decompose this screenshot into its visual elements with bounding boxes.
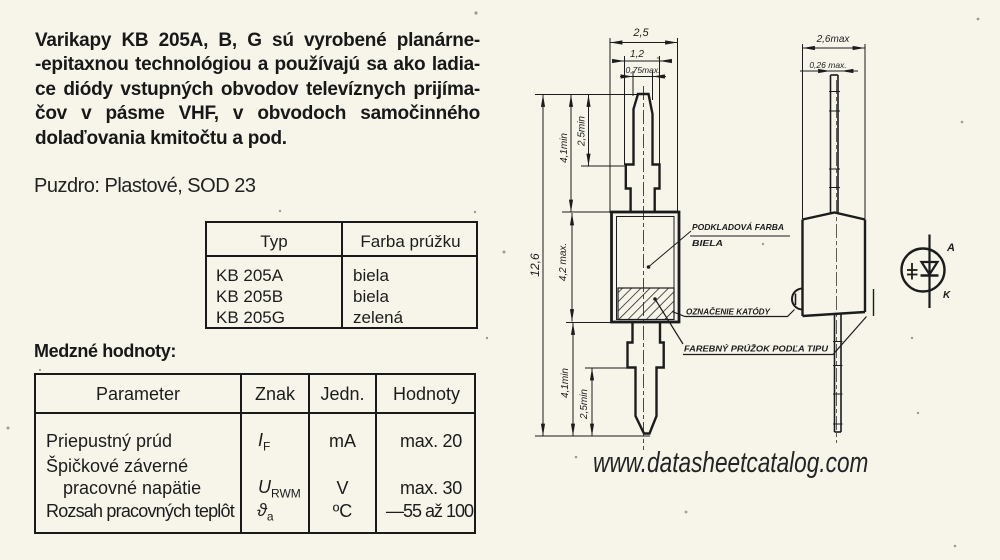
svg-text:4,1min: 4,1min bbox=[560, 368, 571, 398]
svg-text:0,75max.: 0,75max. bbox=[626, 65, 661, 75]
svg-text:2,5min: 2,5min bbox=[577, 116, 588, 147]
svg-text:BIELA: BIELA bbox=[692, 238, 723, 248]
svg-text:4,1min: 4,1min bbox=[559, 133, 570, 163]
svg-text:2,5: 2,5 bbox=[632, 27, 649, 39]
svg-text:0,26 max.: 0,26 max. bbox=[809, 60, 846, 70]
svg-text:A: A bbox=[946, 242, 955, 254]
svg-text:2,5min: 2,5min bbox=[579, 389, 590, 420]
svg-text:OZNAČENIE KATÓDY: OZNAČENIE KATÓDY bbox=[686, 306, 771, 317]
svg-text:4,2 max.: 4,2 max. bbox=[558, 243, 569, 281]
svg-text:1,2: 1,2 bbox=[630, 49, 644, 60]
svg-text:2,6max: 2,6max bbox=[816, 34, 851, 45]
svg-text:K: K bbox=[943, 290, 951, 301]
svg-text:FAREBNÝ PRÚŽOK PODĽA TIPU: FAREBNÝ PRÚŽOK PODĽA TIPU bbox=[684, 343, 829, 354]
svg-text:12,6: 12,6 bbox=[528, 253, 542, 277]
svg-text:PODKLADOVÁ FARBA: PODKLADOVÁ FARBA bbox=[692, 222, 784, 232]
